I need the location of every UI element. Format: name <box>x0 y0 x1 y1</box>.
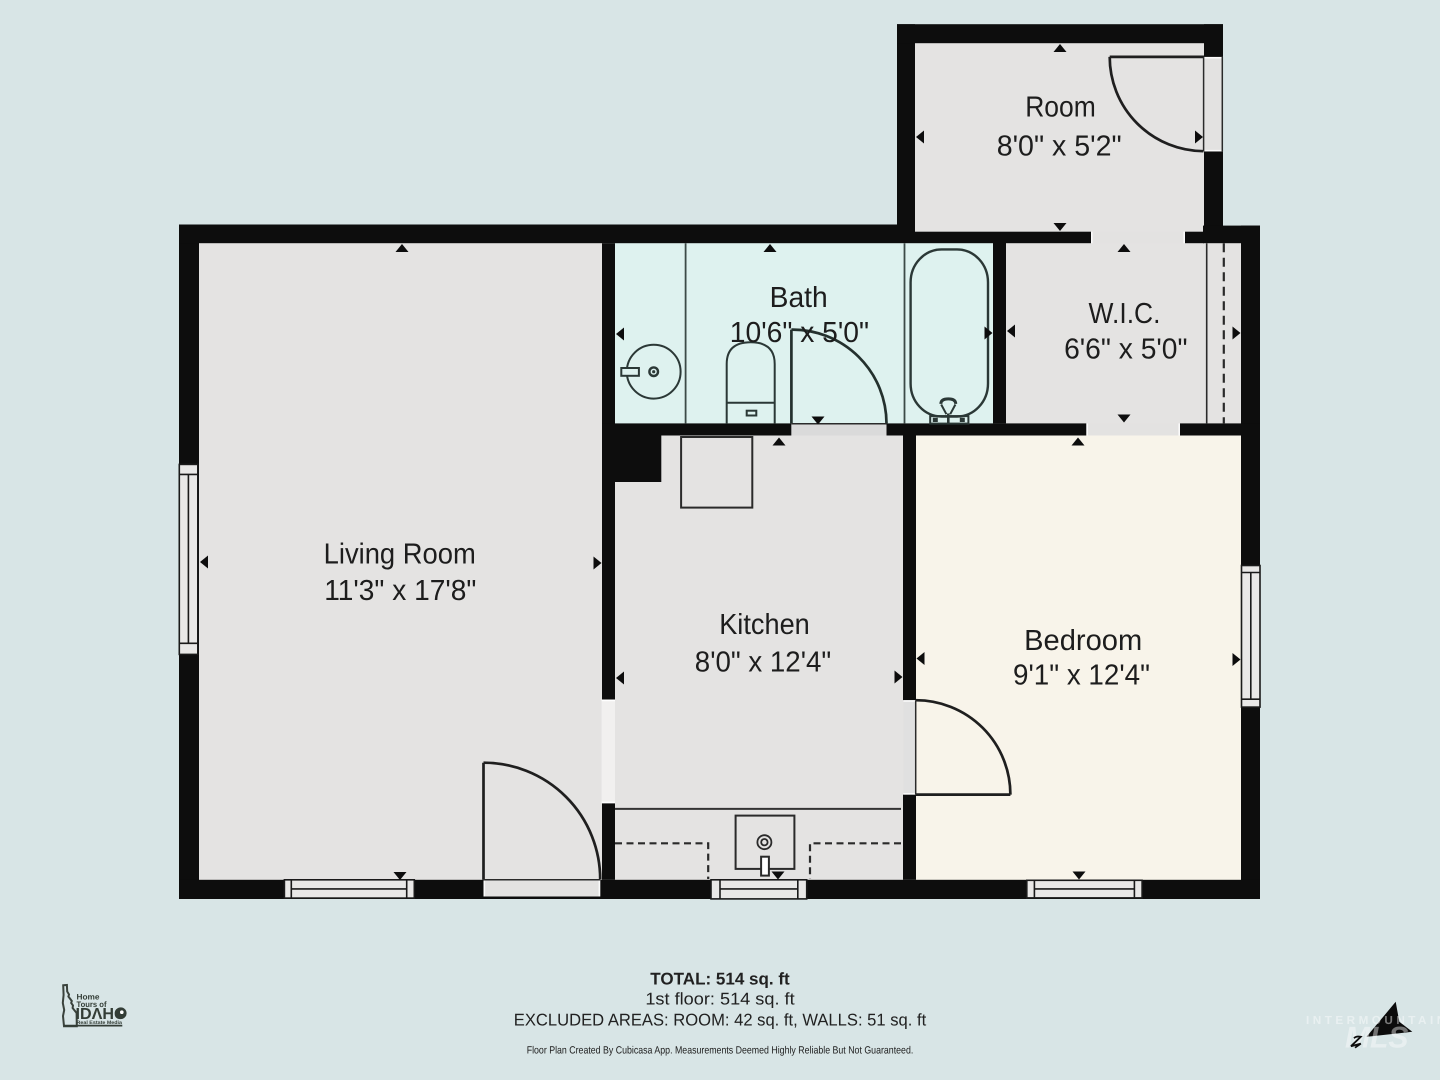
svg-text:EXCLUDED AREAS: ROOM: 42 sq. f: EXCLUDED AREAS: ROOM: 42 sq. ft, WALLS: … <box>514 1011 927 1030</box>
svg-text:Bedroom: Bedroom <box>1024 625 1142 657</box>
svg-text:10'6" x 5'0": 10'6" x 5'0" <box>730 317 869 349</box>
svg-text:W.I.C.: W.I.C. <box>1089 298 1161 330</box>
svg-text:Living Room: Living Room <box>324 539 476 571</box>
svg-text:Room: Room <box>1025 91 1096 123</box>
svg-text:11'3" x 17'8": 11'3" x 17'8" <box>324 575 476 607</box>
svg-text:Floor Plan Created By Cubicasa: Floor Plan Created By Cubicasa App. Meas… <box>527 1044 914 1056</box>
svg-text:8'0" x 12'4": 8'0" x 12'4" <box>695 647 831 679</box>
svg-text:9'1" x 12'4": 9'1" x 12'4" <box>1013 660 1150 692</box>
svg-text:6'6" x 5'0": 6'6" x 5'0" <box>1064 334 1187 366</box>
svg-text:Kitchen: Kitchen <box>719 609 810 641</box>
svg-text:TOTAL: 514 sq. ft: TOTAL: 514 sq. ft <box>650 969 790 988</box>
svg-text:1st floor: 514 sq. ft: 1st floor: 514 sq. ft <box>645 989 795 1008</box>
svg-text:8'0" x 5'2": 8'0" x 5'2" <box>997 130 1122 162</box>
svg-text:Bath: Bath <box>770 282 828 314</box>
